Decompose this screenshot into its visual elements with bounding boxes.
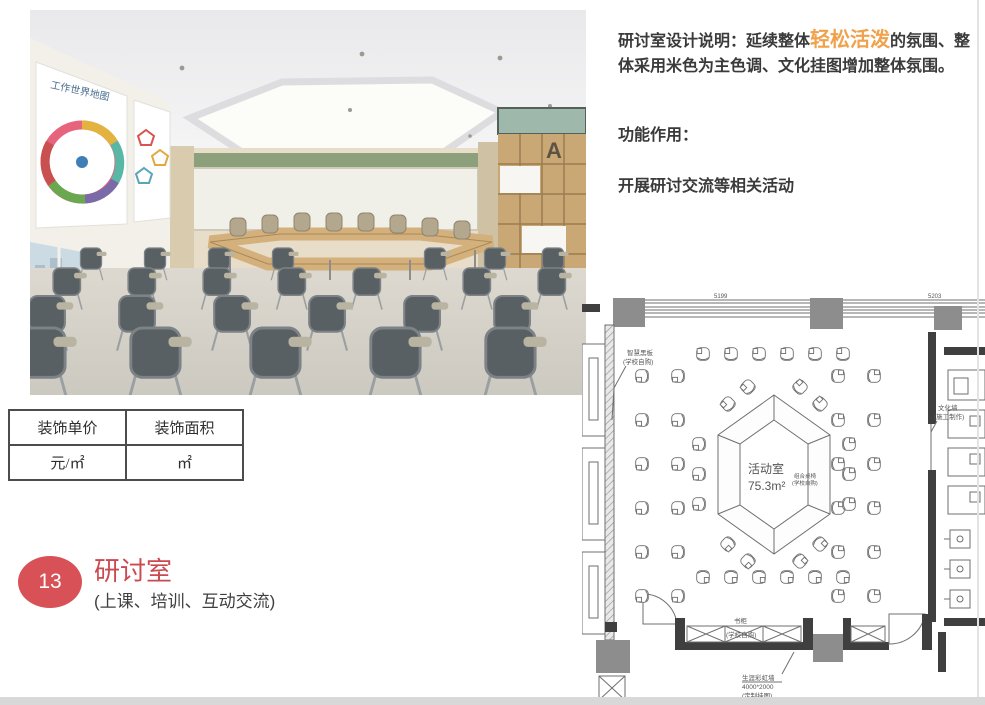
fp-chair <box>693 468 706 481</box>
fp-chair <box>719 395 737 413</box>
value-unit-price: 元/㎡ <box>9 445 126 480</box>
fp-column-topleft <box>613 298 645 327</box>
floor-plan: 5199 5203 <box>582 292 985 700</box>
fp-chair <box>832 414 845 427</box>
fp-chair <box>672 370 685 383</box>
fp-combo-label-2: (学校自购) <box>792 479 818 487</box>
fp-chair <box>636 502 649 515</box>
photo-clerestory <box>498 108 586 134</box>
fp-chair <box>843 498 856 511</box>
fp-right-wall-lower <box>928 470 936 622</box>
slide-right-edge <box>977 0 979 697</box>
design-description-text: 研讨室设计说明：延续整体轻松活泼的氛围、整体采用米色为主色调、文化挂图增加整体氛… <box>618 26 980 78</box>
fp-chair <box>719 535 737 553</box>
fp-chair <box>832 458 845 471</box>
decoration-info-table: 装饰单价 装饰面积 元/㎡ ㎡ <box>8 409 244 481</box>
fp-chair <box>672 458 685 471</box>
fp-chair <box>672 414 685 427</box>
svg-text:文化墙: 文化墙 <box>938 403 958 412</box>
fp-dim-right: 5203 <box>928 294 942 300</box>
header-area: 装饰面积 <box>126 410 243 445</box>
fp-chair <box>868 502 881 515</box>
fp-room-area: 75.3m² <box>748 479 785 493</box>
fp-chair <box>636 590 649 603</box>
fp-chair <box>725 348 738 361</box>
section-number-badge: 13 <box>18 556 82 608</box>
fp-chair <box>739 378 757 396</box>
design-description: 研讨室设计说明：延续整体轻松活泼的氛围、整体采用米色为主色调、文化挂图增加整体氛… <box>618 26 980 199</box>
fp-chair <box>636 370 649 383</box>
fp-chair <box>791 552 809 570</box>
fp-chair <box>697 571 710 584</box>
table-header-row: 装饰单价 装饰面积 <box>9 410 243 445</box>
section-title-block: 13 研讨室 (上课、培训、互动交流) <box>18 556 275 612</box>
svg-text:书柜: 书柜 <box>734 616 748 625</box>
fp-chair <box>739 552 757 570</box>
fp-label-blackboard: 智慧黑板 (学校自购) <box>612 348 654 420</box>
fp-right-wall-upper <box>928 332 936 424</box>
fp-chair <box>693 438 706 451</box>
fp-chair <box>791 378 809 396</box>
fp-chair <box>636 458 649 471</box>
fp-chair <box>753 571 766 584</box>
fp-chair <box>868 414 881 427</box>
fp-chair <box>636 414 649 427</box>
fp-chair <box>832 590 845 603</box>
section-text: 研讨室 (上课、培训、互动交流) <box>94 556 275 612</box>
fp-chair <box>693 498 706 511</box>
value-area: ㎡ <box>126 445 243 480</box>
svg-text:(施工制作): (施工制作) <box>934 412 964 421</box>
fp-combo-label-1: 组合桌椅 <box>794 472 817 480</box>
fp-room-name: 活动室 <box>748 461 784 476</box>
slide-bottom-edge <box>0 697 985 705</box>
fp-wall-stub-top <box>582 304 600 312</box>
fp-chair <box>832 370 845 383</box>
fp-chair <box>843 438 856 451</box>
desc-prefix: 研讨室设计说明：延续整体 <box>618 33 810 50</box>
fp-chair <box>672 502 685 515</box>
function-text: 开展研讨交流等相关活动 <box>618 175 980 198</box>
fp-label-rainbow-wall: 生涯彩虹墙 4000*2000 (定制挂图) <box>742 652 794 700</box>
fp-chair <box>868 458 881 471</box>
fp-chair <box>843 468 856 481</box>
fp-column-bottomleft <box>596 640 630 673</box>
table-value-row: 元/㎡ ㎡ <box>9 445 243 480</box>
fp-chair <box>837 571 850 584</box>
page-title: 研讨室 <box>94 558 275 585</box>
page-subtitle: (上课、培训、互动交流) <box>94 587 275 612</box>
svg-text:生涯彩虹墙: 生涯彩虹墙 <box>742 673 775 682</box>
svg-text:(学校自购): (学校自购) <box>726 630 756 639</box>
fp-chair <box>811 395 829 413</box>
fp-chair <box>781 348 794 361</box>
fp-chair <box>809 571 822 584</box>
svg-text:4000*2000: 4000*2000 <box>742 684 774 691</box>
photo-career-wheel <box>45 125 120 199</box>
fp-chair <box>781 571 794 584</box>
fp-left-wall <box>605 325 614 640</box>
fp-chair <box>868 370 881 383</box>
photo-poster-small <box>134 100 170 222</box>
fp-chair <box>672 590 685 603</box>
fp-bookcase-xboxes <box>687 626 885 642</box>
svg-text:(学校自购): (学校自购) <box>623 357 653 366</box>
fp-chair <box>725 571 738 584</box>
photo-shelf-panel-1 <box>500 166 540 193</box>
function-label: 功能作用： <box>618 124 980 147</box>
fp-column-topmid <box>810 298 843 329</box>
fp-chair <box>672 546 685 559</box>
fp-chair <box>837 348 850 361</box>
fp-chair <box>811 535 829 553</box>
room-photo: 工作世界地图 A <box>30 10 586 395</box>
fp-chair <box>809 348 822 361</box>
fp-chair <box>868 590 881 603</box>
header-unit-price: 装饰单价 <box>9 410 126 445</box>
svg-text:智慧黑板: 智慧黑板 <box>627 348 654 357</box>
fp-column-topright <box>934 306 962 330</box>
fp-chair <box>753 348 766 361</box>
fp-left-rooms <box>582 344 605 634</box>
fp-chair <box>868 546 881 559</box>
photo-pillar-left <box>170 146 194 278</box>
room-photo-illustration: 工作世界地图 A <box>30 10 586 395</box>
fp-door-right <box>889 614 925 644</box>
photo-shelf-letter: A <box>546 138 562 163</box>
fp-chair <box>832 546 845 559</box>
fp-chair <box>697 348 710 361</box>
fp-chair <box>636 546 649 559</box>
desc-highlight: 轻松活泼 <box>810 29 890 51</box>
fp-dim-left: 5199 <box>714 294 728 300</box>
